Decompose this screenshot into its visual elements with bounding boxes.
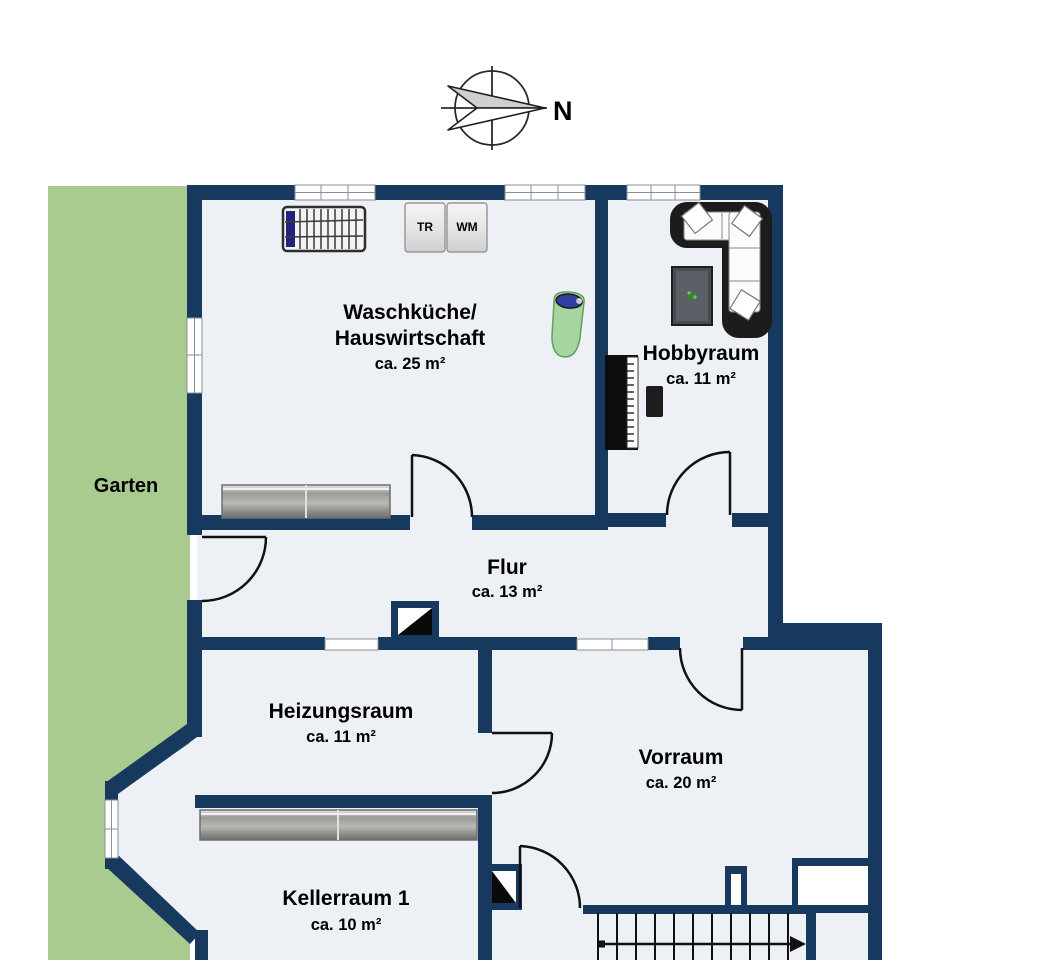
- wall-opening-flur-2: [577, 639, 648, 650]
- wall-niche-top: [792, 858, 868, 866]
- washing-machine-appliance: WM: [447, 203, 487, 252]
- sideboard-kellerraum: [200, 810, 477, 840]
- wall-hobbyraum-south-left: [595, 513, 666, 527]
- label-flur-area: ca. 13 m²: [472, 583, 543, 601]
- wall-stair-edge-right: [806, 905, 816, 960]
- label-kellerraum1: Kellerraum 1: [282, 887, 410, 910]
- label-heizungsraum-area: ca. 11 m²: [306, 728, 376, 746]
- wall-stair-edge-top: [583, 905, 812, 914]
- compass-north-label: N: [553, 96, 573, 126]
- window-hobbyraum-north: [627, 185, 700, 200]
- wall-niche-left: [792, 858, 798, 913]
- wall-heizungsraum-south: [195, 795, 492, 808]
- floor-plan-drawing: Garten: [0, 0, 1060, 960]
- washer-label: WM: [456, 220, 477, 234]
- compass-rose: N: [441, 66, 573, 150]
- label-waschkueche-area: ca. 25 m²: [375, 355, 446, 373]
- wall-bay-west-upper: [105, 781, 118, 800]
- wall-vorraum-northeast: [770, 623, 882, 650]
- light-well-niche: [798, 866, 868, 905]
- piano: [605, 355, 638, 450]
- sideboard-waschkueche: [222, 485, 390, 518]
- wall-left-mid: [187, 393, 202, 535]
- floor-flur: [197, 520, 776, 644]
- window-waschkueche-west: [187, 318, 202, 393]
- coffee-table: [672, 267, 712, 325]
- label-hobbyraum: Hobbyraum: [643, 342, 760, 365]
- window-waschkueche-north-1: [295, 185, 375, 200]
- label-waschkueche-line2: Hauswirtschaft: [335, 327, 486, 350]
- wall-divider-heizungsraum-vorraum: [478, 637, 492, 733]
- wall-left-upper: [187, 185, 202, 318]
- wall-flur-south-3: [648, 637, 680, 650]
- dryer-appliance: TR: [405, 203, 445, 252]
- stair-pillar-slot: [731, 874, 741, 905]
- window-waschkueche-north-2: [505, 185, 585, 200]
- wall-opening-flur-1: [325, 639, 378, 650]
- label-vorraum: Vorraum: [639, 746, 724, 769]
- wall-right-lower: [868, 623, 882, 960]
- label-vorraum-area: ca. 20 m²: [646, 774, 717, 792]
- drying-rack: [283, 207, 365, 251]
- garden-label: Garten: [94, 475, 158, 497]
- compass-needle-upper: [448, 86, 545, 108]
- wall-left-lower: [187, 600, 202, 737]
- compass-needle-lower: [448, 108, 545, 130]
- window-bay-west: [105, 800, 118, 858]
- wall-waschkueche-south-right: [472, 515, 608, 530]
- label-waschkueche-line1: Waschküche/: [343, 301, 477, 324]
- label-flur: Flur: [487, 556, 527, 579]
- piano-bench: [646, 386, 663, 417]
- label-hobbyraum-area: ca. 11 m²: [666, 370, 736, 388]
- label-kellerraum1-area: ca. 10 m²: [311, 916, 382, 934]
- wall-hobbyraum-south-right: [732, 513, 776, 527]
- label-heizungsraum: Heizungsraum: [269, 700, 414, 723]
- dryer-label: TR: [417, 220, 433, 234]
- floor-plan-page: Garten: [0, 0, 1060, 960]
- wall-flur-south-1: [187, 637, 325, 650]
